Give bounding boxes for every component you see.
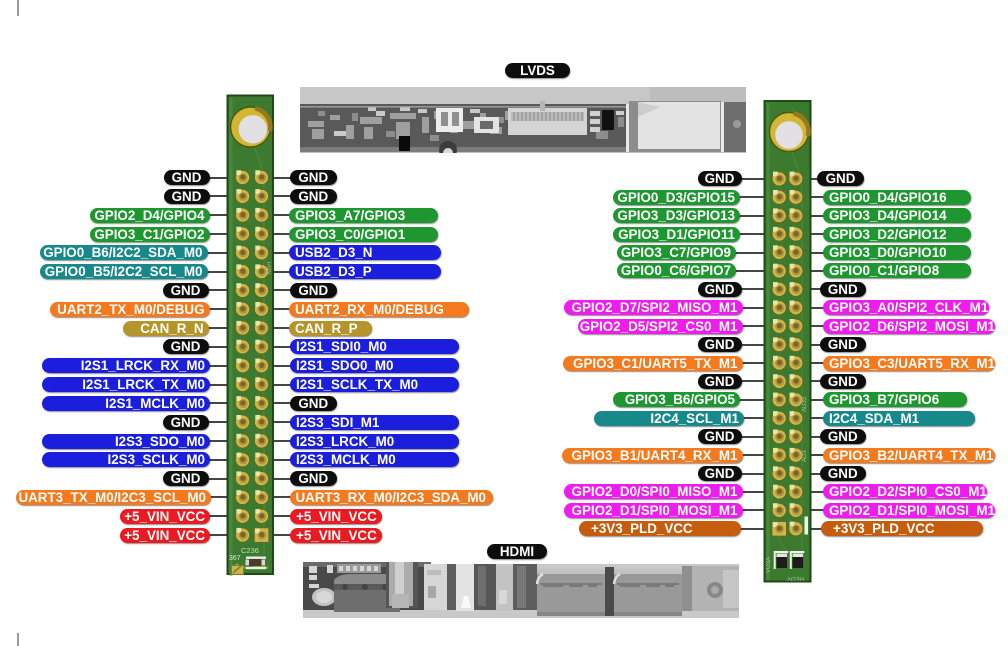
svg-text:AD3: AD3 bbox=[802, 450, 808, 462]
svg-text:AD33: AD33 bbox=[802, 396, 808, 412]
svg-text:VO3A: VO3A bbox=[766, 557, 772, 573]
svg-text:REOV: REOV bbox=[787, 575, 804, 581]
